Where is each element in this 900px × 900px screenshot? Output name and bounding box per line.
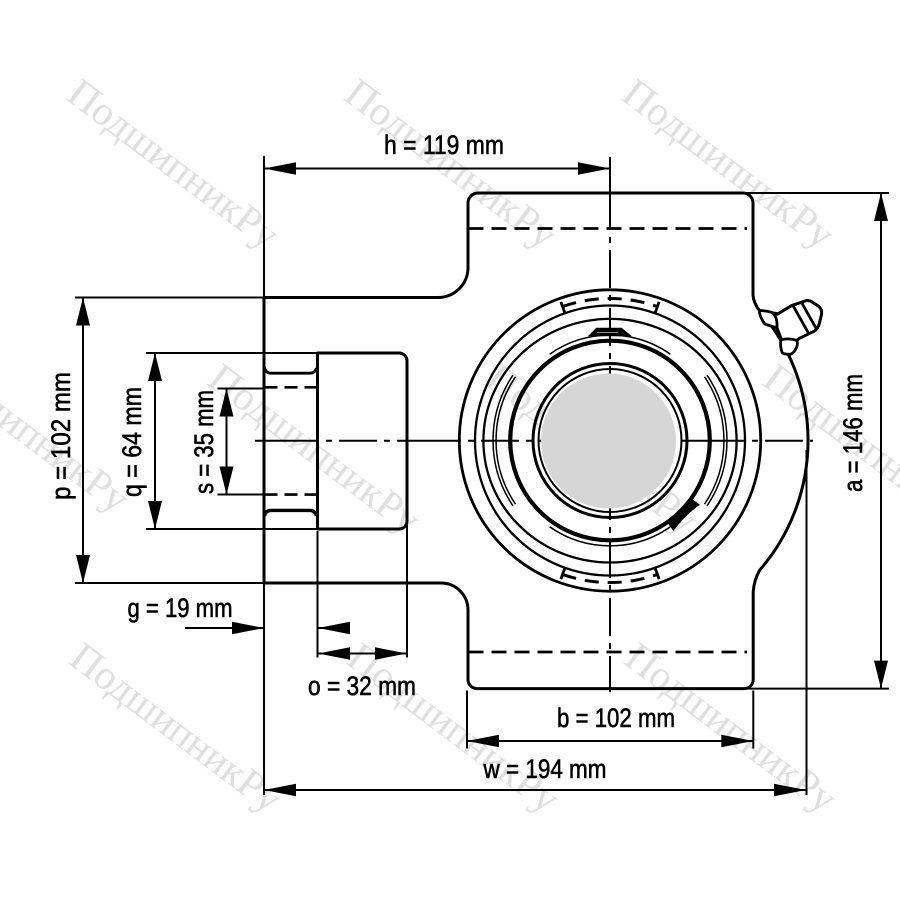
svg-text:a = 146 mm: a = 146 mm	[838, 374, 868, 492]
svg-text:s = 35 mm: s = 35 mm	[189, 390, 219, 494]
svg-text:b = 102 mm: b = 102 mm	[557, 703, 675, 733]
svg-text:p = 102 mm: p = 102 mm	[46, 372, 76, 500]
svg-text:g = 19 mm: g = 19 mm	[128, 593, 233, 623]
svg-text:o = 32 mm: o = 32 mm	[308, 671, 416, 701]
svg-text:q = 64 mm: q = 64 mm	[117, 387, 147, 497]
svg-text:h = 119 mm: h = 119 mm	[384, 130, 504, 160]
svg-text:w = 194 mm: w = 194 mm	[483, 754, 607, 784]
